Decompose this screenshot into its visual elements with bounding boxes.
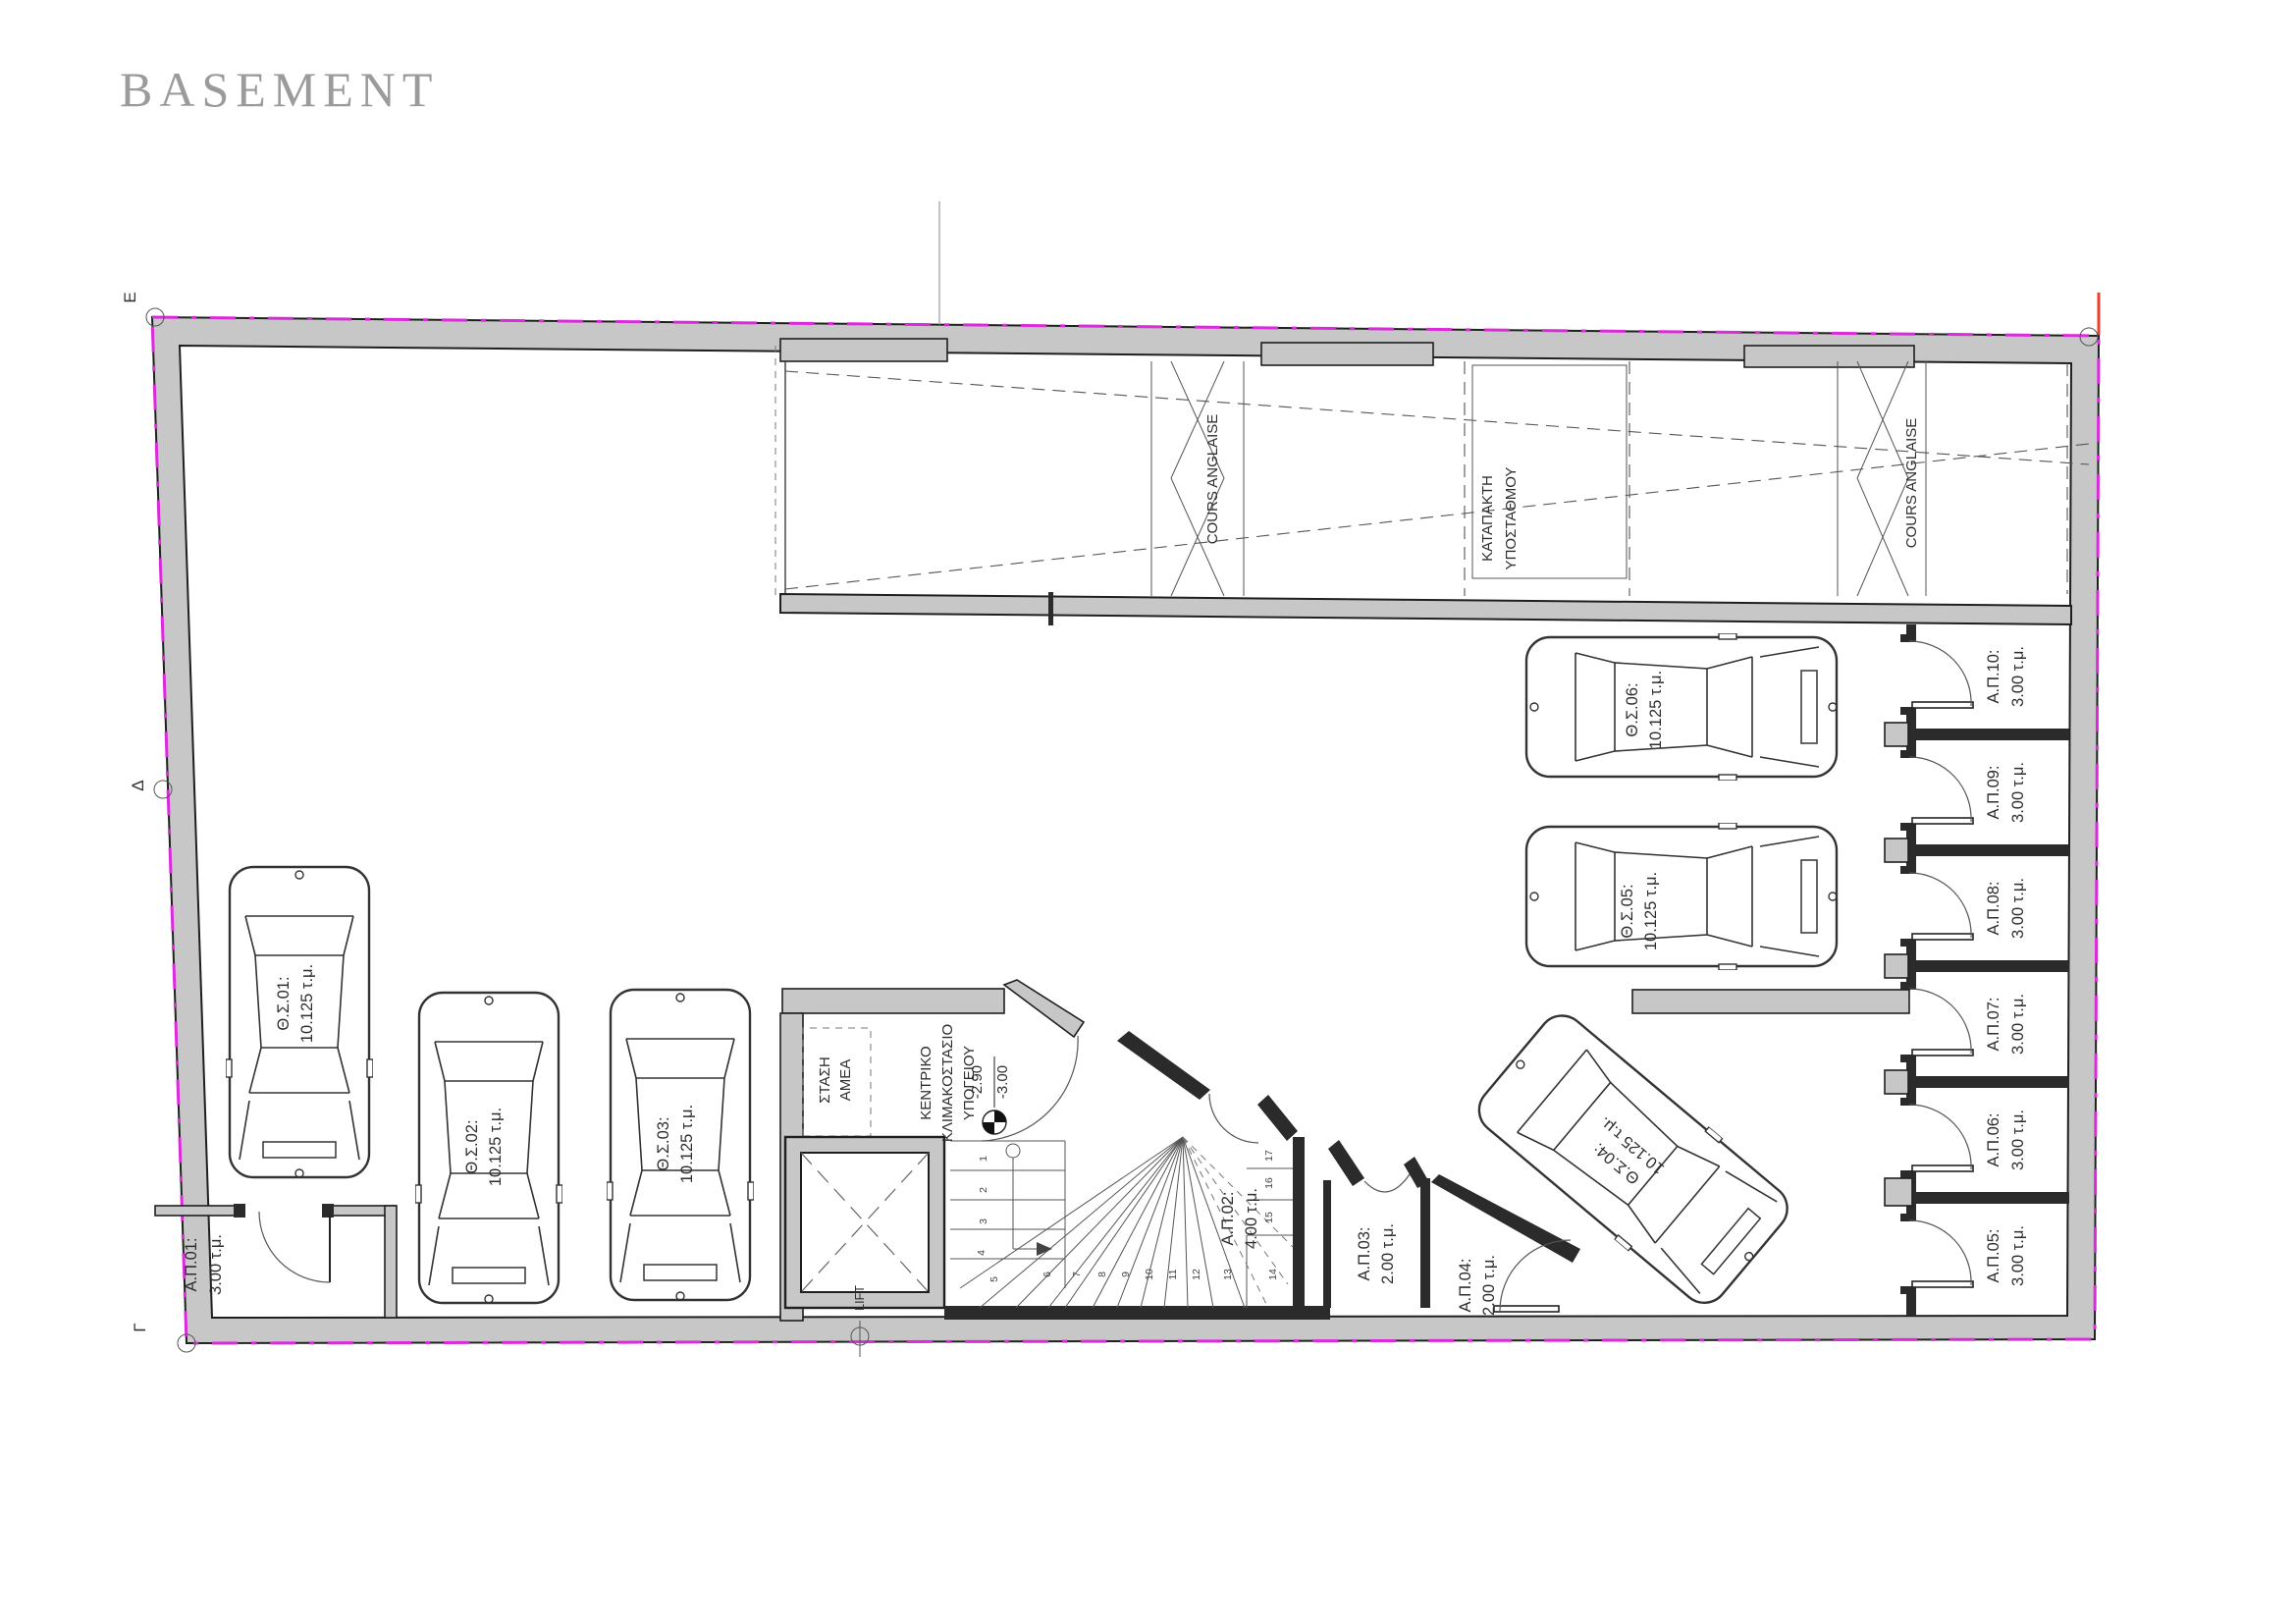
room-label-ap02-id: Α.Π.02: [1219, 1191, 1237, 1245]
cours-anglaise-right-label: COURS ANGLAISE [1903, 418, 1920, 549]
svg-text:1: 1 [978, 1156, 989, 1162]
room-label-ap03-id: Α.Π.03: [1356, 1226, 1373, 1280]
parking-label-ts05-area: 10.125 τ.μ. [1642, 872, 1660, 950]
substation-label-line1: ΚΑΤΑΠΑΚΤΗ [1479, 475, 1496, 562]
svg-text:7: 7 [1071, 1272, 1083, 1277]
central-core: ΣΤΑΣΗ ΑΜΕΑ LIFT [780, 980, 1330, 1321]
room-label-ap09-id: Α.Π.09: [1985, 765, 2002, 819]
parking-label-ts03-area: 10.125 τ.μ. [678, 1105, 696, 1183]
storage-rooms-right-column [1885, 624, 2069, 1316]
stair-treads-hidden [1183, 1137, 1293, 1308]
room-label-ap03-area: 2.00 τ.μ. [1379, 1223, 1397, 1284]
room-label-ap01-area: 3.00 τ.μ. [207, 1234, 225, 1295]
amea-label-line1: ΣΤΑΣΗ [817, 1056, 833, 1103]
svg-text:10: 10 [1144, 1269, 1155, 1280]
room-label-ap10-id: Α.Π.10: [1985, 649, 2002, 703]
svg-text:8: 8 [1096, 1272, 1108, 1277]
room-label-ap02-area: 4.00 τ.μ. [1243, 1188, 1260, 1249]
room-label-ap10-area: 3.00 τ.μ. [2009, 646, 2027, 707]
svg-text:17: 17 [1263, 1150, 1275, 1162]
boundary-marker-D: Δ [129, 780, 147, 790]
parking-label-ts03-id: Θ.Σ.03: [655, 1116, 672, 1170]
parking-label-ts05-id: Θ.Σ.05: [1619, 884, 1636, 938]
svg-text:3: 3 [978, 1218, 989, 1224]
room-label-ap04-id: Α.Π.04: [1457, 1258, 1474, 1312]
room-label-ap05-area: 3.00 τ.μ. [2009, 1225, 2027, 1286]
room-ap04 [1431, 1174, 1580, 1312]
parking-label-ts02-id: Θ.Σ.02: [463, 1119, 481, 1173]
stair-core-title-line2: ΚΛΙΜΑΚΟΣΤΑΣΙΟ [939, 1024, 956, 1142]
lift-shaft [785, 1137, 944, 1308]
cours-anglaise-left-well [1151, 361, 1244, 596]
stair-core-title-line1: ΚΕΝΤΡΙΚΟ [918, 1046, 934, 1119]
parking-label-ts01-id: Θ.Σ.01: [275, 976, 293, 1030]
car-ts05 [1526, 823, 1837, 970]
room-label-ap06-area: 3.00 τ.μ. [2009, 1110, 2027, 1170]
parking-label-ts01-area: 10.125 τ.μ. [298, 964, 316, 1043]
svg-text:4: 4 [976, 1250, 988, 1256]
lightwell-strip: COURS ANGLAISE ΚΑΤΑΠΑΚΤΗ ΥΠΟΣΤΑΘΜΟΥ COUR… [775, 339, 2089, 596]
car-ts06 [1526, 633, 1837, 781]
svg-text:16: 16 [1263, 1177, 1275, 1189]
room-label-ap01-id: Α.Π.01: [183, 1237, 200, 1291]
level-lower: -3.00 [994, 1065, 1011, 1099]
room-label-ap07-area: 3.00 τ.μ. [2009, 994, 2027, 1055]
substation-label-line2: ΥΠΟΣΤΑΘΜΟΥ [1503, 467, 1520, 570]
floor-plan-drawing: Ε Δ Γ COURS ANGLAISE [0, 0, 2296, 1624]
svg-text:2: 2 [978, 1187, 989, 1193]
room-label-ap04-area: 2.00 τ.μ. [1480, 1255, 1498, 1316]
stair-core-title-line3: ΥΠΟΓΕΙΟΥ [961, 1046, 978, 1120]
amea-label-line2: ΑΜΕΑ [837, 1059, 854, 1102]
parking-label-ts06-id: Θ.Σ.06: [1624, 682, 1641, 736]
room-label-ap07-id: Α.Π.07: [1985, 997, 2002, 1051]
room-label-ap09-area: 3.00 τ.μ. [2009, 762, 2027, 823]
svg-text:12: 12 [1191, 1269, 1202, 1280]
room-ap03 [1323, 1140, 1430, 1308]
parking-divider-wall [1632, 990, 1909, 1013]
svg-text:9: 9 [1120, 1272, 1132, 1277]
garage-top-wall [780, 594, 2071, 624]
parking-label-ts06-area: 10.125 τ.μ. [1647, 671, 1665, 749]
room-label-ap05-id: Α.Π.05: [1985, 1228, 2002, 1282]
room-label-ap08-area: 3.00 τ.μ. [2009, 878, 2027, 939]
stair-treads [950, 1137, 1293, 1308]
parking-label-ts02-area: 10.125 τ.μ. [487, 1108, 505, 1186]
wall-joint-tick [1048, 592, 1053, 625]
svg-text:13: 13 [1222, 1269, 1234, 1280]
svg-text:15: 15 [1263, 1212, 1275, 1223]
boundary-marker-G: Γ [131, 1323, 149, 1331]
svg-text:14: 14 [1267, 1269, 1279, 1280]
svg-text:11: 11 [1167, 1269, 1179, 1279]
lift-label: LIFT [853, 1285, 867, 1311]
svg-text:6: 6 [1041, 1272, 1053, 1277]
room-label-ap06-id: Α.Π.06: [1985, 1112, 2002, 1166]
boundary-marker-E: Ε [121, 292, 139, 302]
floor-plan-page: BASEMENT [0, 0, 2296, 1624]
room-label-ap08-id: Α.Π.08: [1985, 881, 2002, 935]
cours-anglaise-left-label: COURS ANGLAISE [1204, 414, 1221, 545]
svg-text:5: 5 [988, 1276, 1000, 1282]
